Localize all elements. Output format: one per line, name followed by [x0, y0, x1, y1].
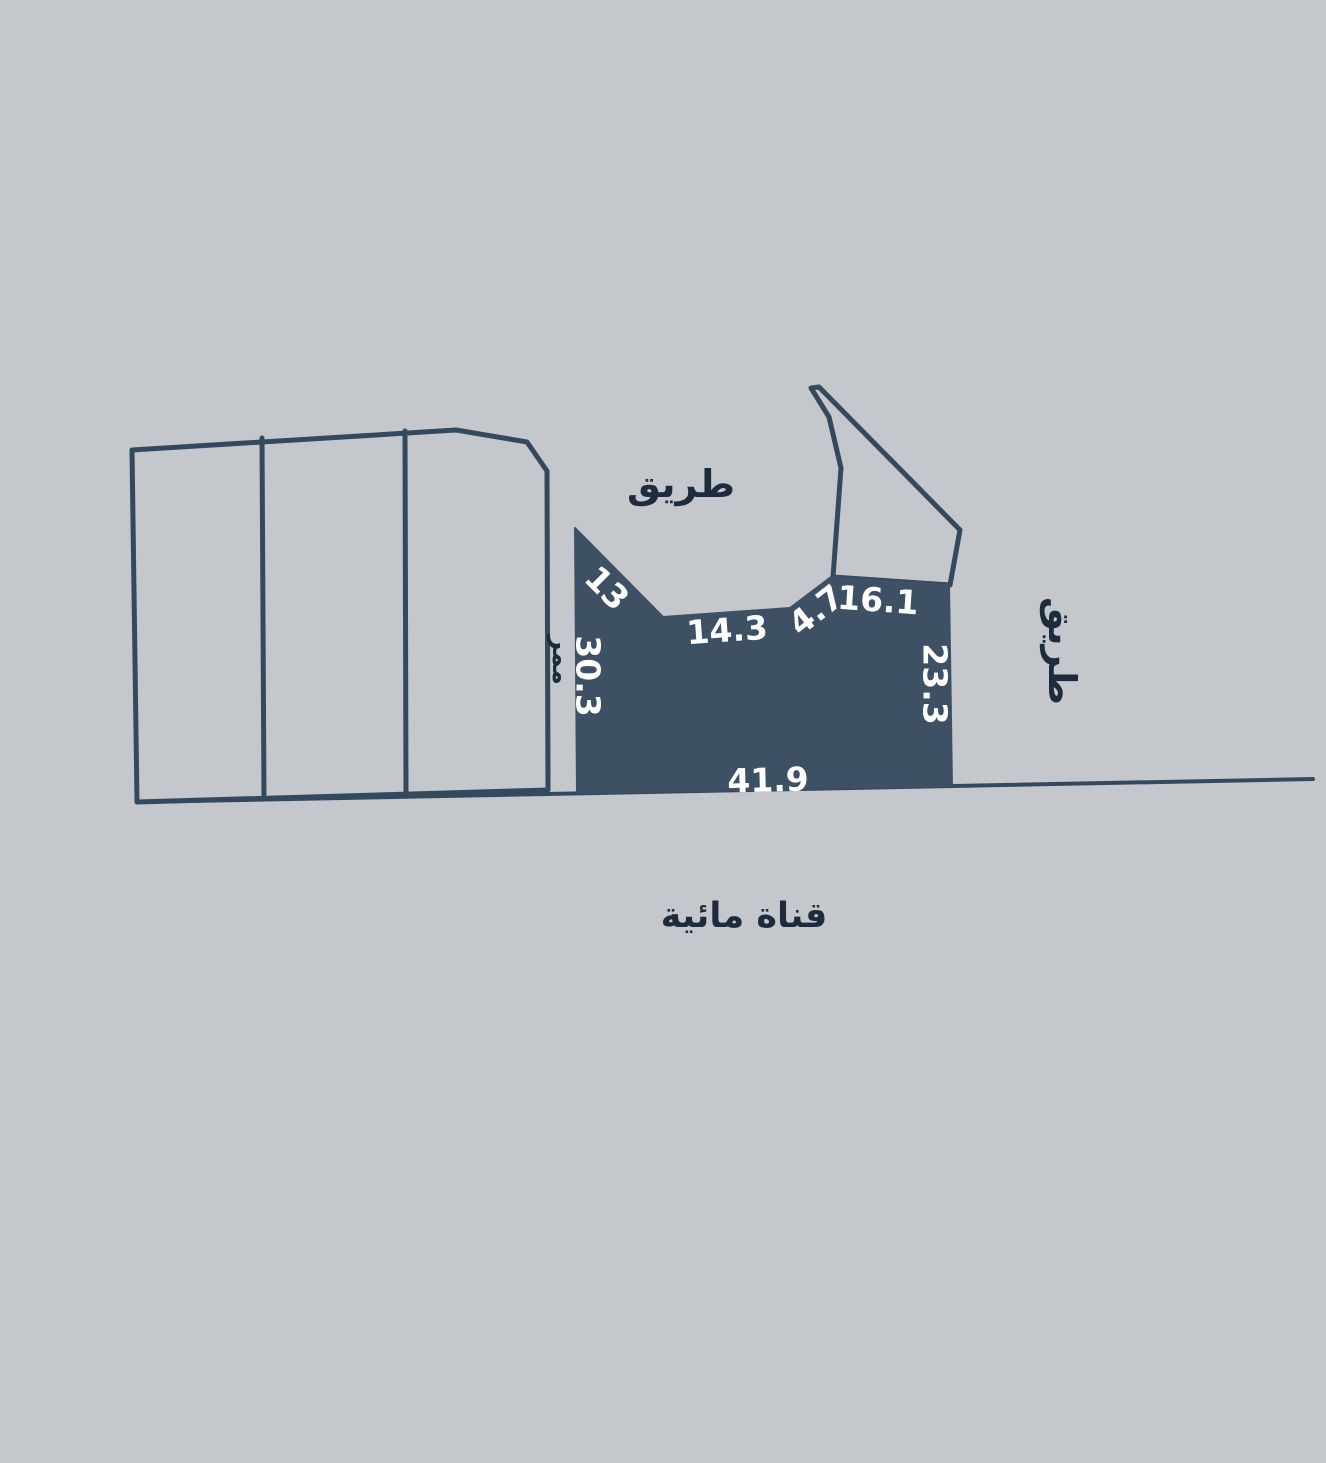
parcel-divider-right [405, 431, 406, 796]
flag-parcel-outline [811, 387, 960, 585]
water-canal-label: قناة مائية [661, 896, 828, 936]
dimension-east-side: 23.3 [916, 643, 955, 724]
subject-plot-shape [575, 528, 952, 793]
neighbor-parcels-block [132, 430, 548, 802]
cadastral-map: 13 30.3 14.3 4.7 16.1 23.3 41.9 طريق طري… [0, 0, 1326, 1463]
map-canvas: 13 30.3 14.3 4.7 16.1 23.3 41.9 طريق طري… [0, 0, 1326, 1463]
road-label-top: طريق [627, 462, 735, 506]
road-label-right: طريق [1040, 597, 1084, 705]
dimension-north-side-left: 14.3 [685, 608, 769, 653]
parcel-divider-left [262, 438, 264, 799]
neighbor-parcels-outline [132, 430, 548, 802]
dimension-south-side: 41.9 [727, 759, 809, 800]
passage-label: ممر [546, 633, 576, 685]
dimension-north-side-right: 16.1 [836, 578, 920, 623]
